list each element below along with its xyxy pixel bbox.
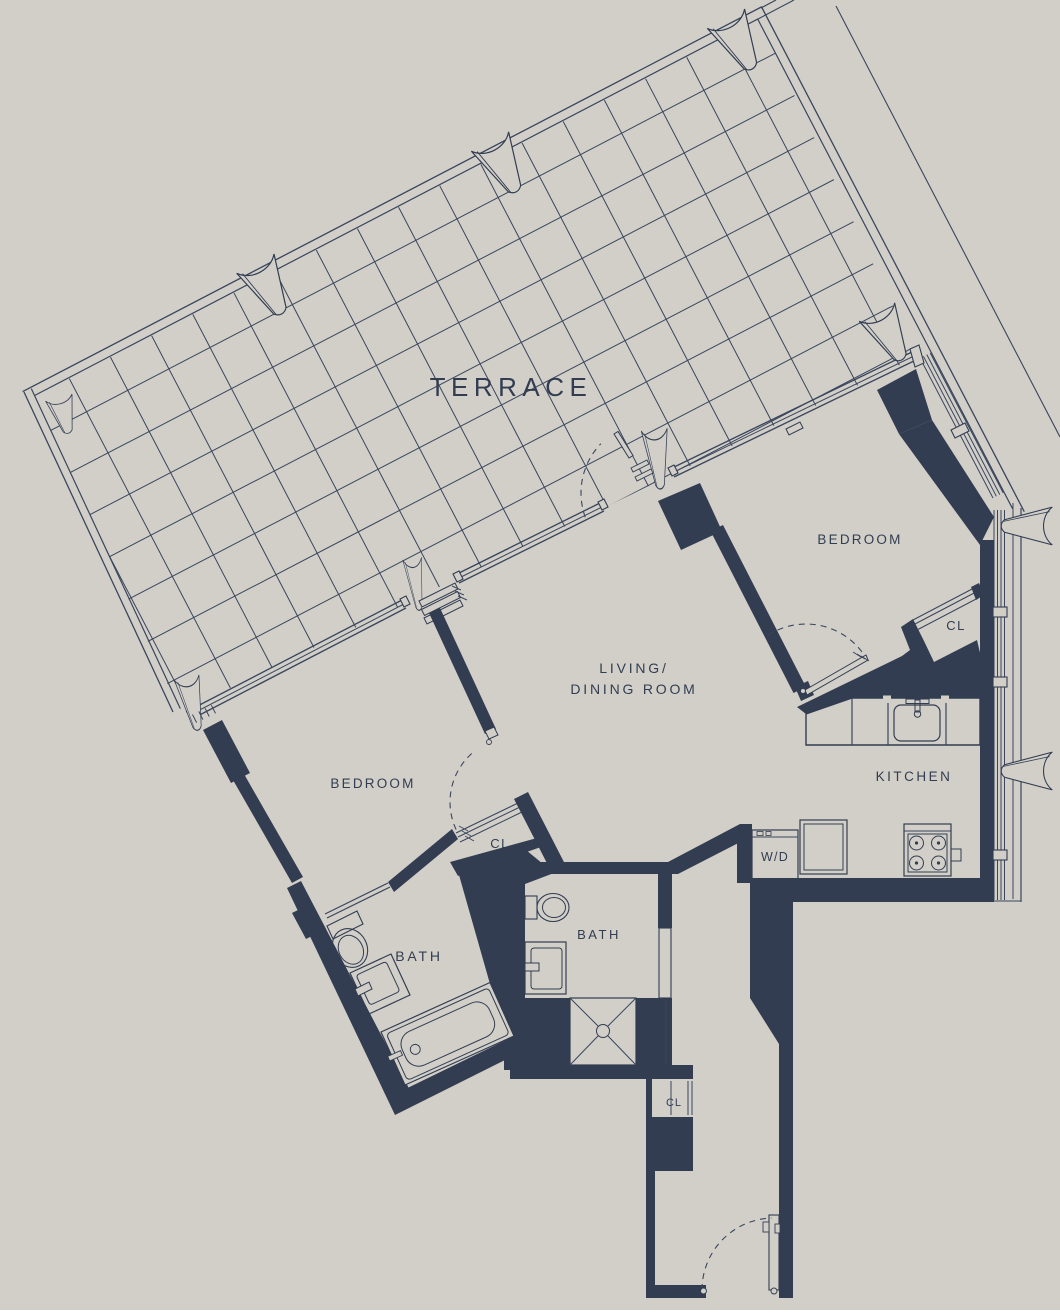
svg-text:BATH: BATH [395, 948, 443, 964]
svg-text:BEDROOM: BEDROOM [817, 532, 902, 547]
svg-text:CL: CL [666, 1097, 682, 1109]
svg-text:DINING ROOM: DINING ROOM [570, 681, 697, 697]
svg-text:BEDROOM: BEDROOM [330, 776, 415, 791]
svg-text:LIVING/: LIVING/ [599, 660, 668, 676]
svg-text:CL: CL [490, 836, 510, 851]
svg-text:CL: CL [946, 618, 966, 633]
svg-text:KITCHEN: KITCHEN [876, 769, 953, 784]
svg-text:BATH: BATH [577, 927, 621, 942]
svg-text:TERRACE: TERRACE [430, 372, 593, 402]
svg-text:W/D: W/D [761, 850, 789, 864]
